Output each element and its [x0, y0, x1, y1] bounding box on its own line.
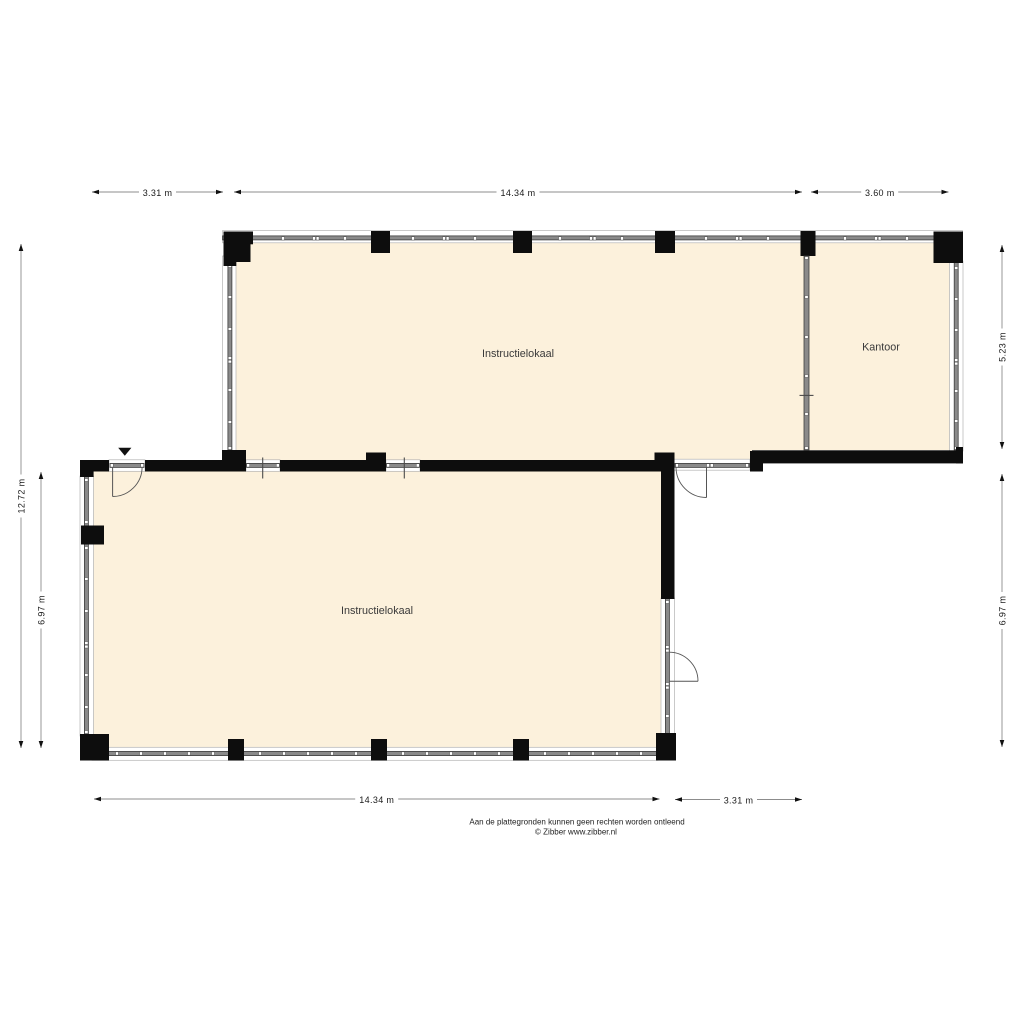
- svg-text:Instructielokaal: Instructielokaal: [341, 605, 413, 617]
- svg-text:14.34 m: 14.34 m: [359, 795, 394, 805]
- svg-text:6.97 m: 6.97 m: [998, 596, 1008, 626]
- svg-text:3.31 m: 3.31 m: [143, 188, 173, 198]
- svg-text:6.97 m: 6.97 m: [37, 595, 47, 625]
- svg-text:14.34 m: 14.34 m: [501, 188, 536, 198]
- svg-text:Aan de plattegronden kunnen ge: Aan de plattegronden kunnen geen rechten…: [469, 818, 684, 827]
- svg-text:© Zibber www.zibber.nl: © Zibber www.zibber.nl: [535, 827, 617, 836]
- svg-text:5.23 m: 5.23 m: [998, 332, 1008, 362]
- svg-text:12.72 m: 12.72 m: [17, 479, 27, 514]
- svg-text:Kantoor: Kantoor: [862, 342, 900, 354]
- svg-text:Instructielokaal: Instructielokaal: [482, 348, 554, 360]
- svg-text:3.60 m: 3.60 m: [865, 188, 895, 198]
- svg-text:3.31 m: 3.31 m: [724, 796, 754, 806]
